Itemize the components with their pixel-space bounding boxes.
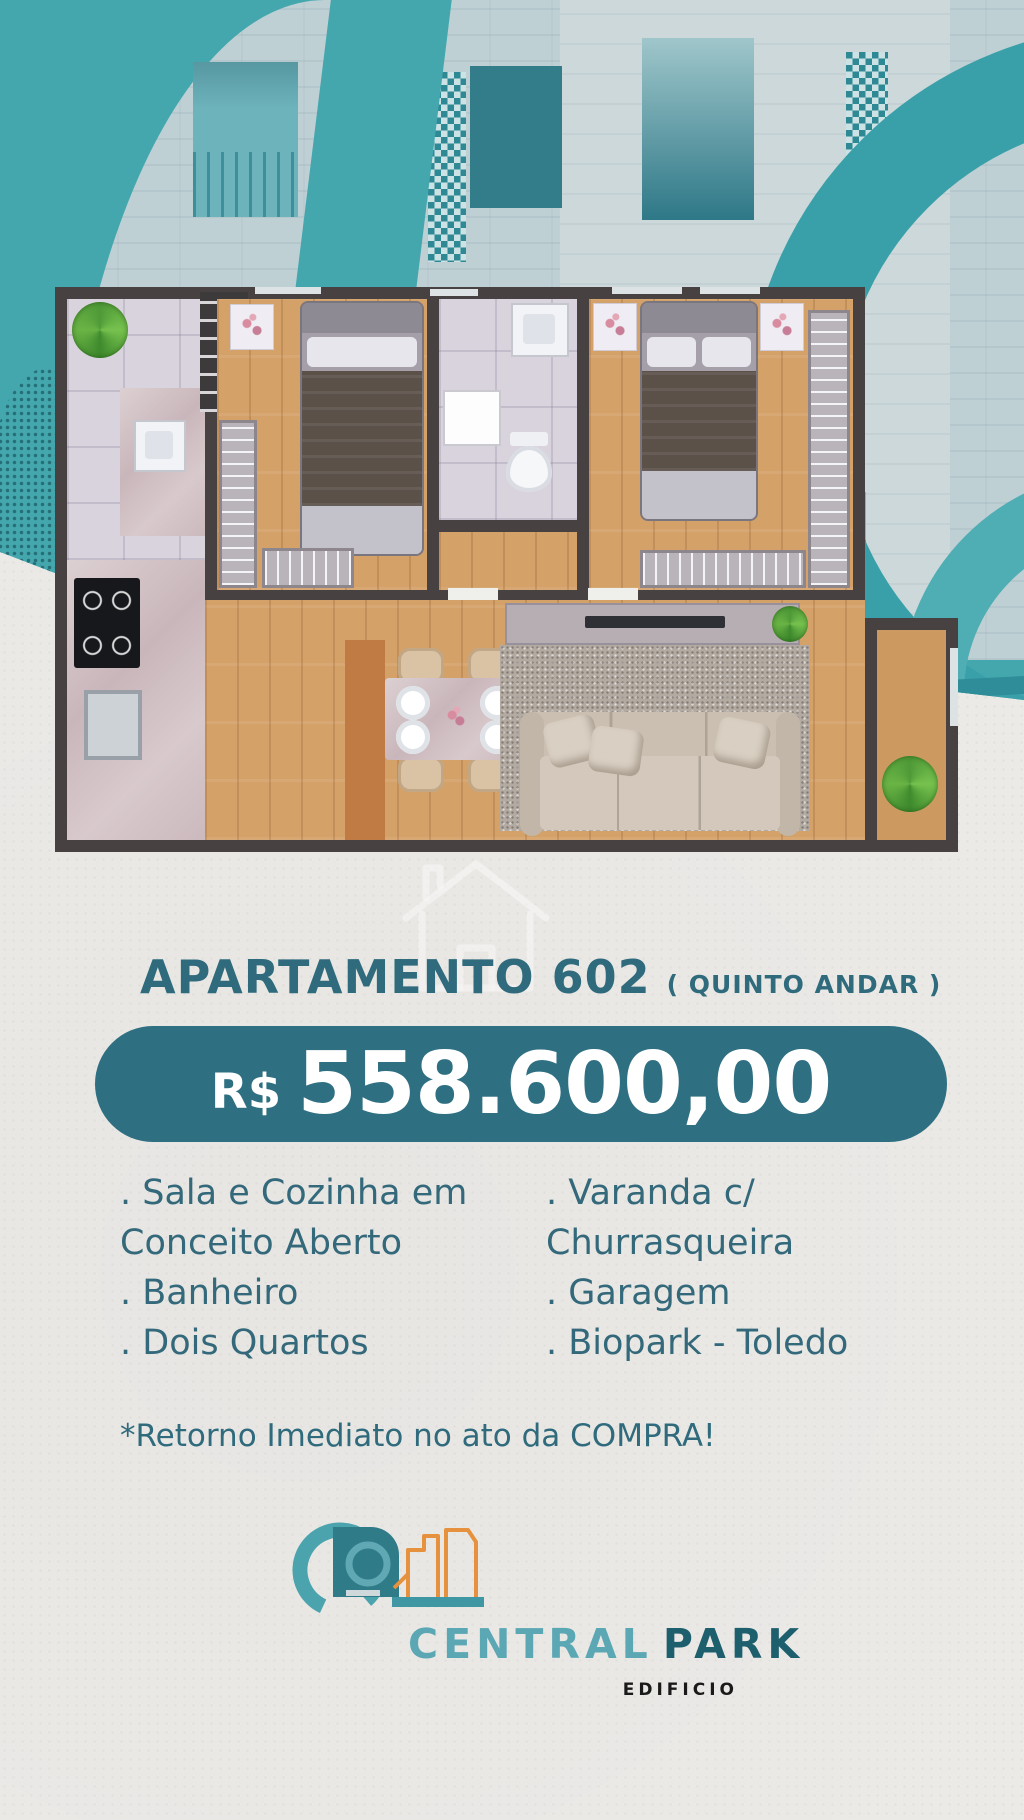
apartment-floor-note: ( QUINTO ANDAR ) xyxy=(667,970,942,999)
tv xyxy=(585,616,725,628)
window-marker xyxy=(255,287,321,294)
brand-subtitle: EDIFICIO xyxy=(560,1680,738,1700)
double-bed xyxy=(640,301,758,521)
plate xyxy=(396,720,430,754)
window-marker xyxy=(700,287,760,294)
feature-item: . Dois Quartos xyxy=(120,1318,528,1368)
door-opening xyxy=(588,588,638,600)
wardrobe-rack xyxy=(219,420,257,588)
page-title: APARTAMENTO 602( QUINTO ANDAR ) xyxy=(140,950,941,1004)
dining-chair xyxy=(398,756,444,792)
brand-name-primary: CENTRAL xyxy=(408,1620,653,1668)
flower-stand xyxy=(230,304,274,350)
toilet xyxy=(506,432,552,492)
window-marker xyxy=(612,287,682,294)
bathroom-sink xyxy=(511,303,569,357)
price-amount: 558.600,00 xyxy=(297,1034,831,1134)
plant-icon xyxy=(772,606,808,642)
feature-item: . Sala e Cozinha em Conceito Aberto xyxy=(120,1168,528,1268)
shower-box xyxy=(443,390,501,446)
feature-column-right: . Varanda c/ Churrasqueira . Garagem . B… xyxy=(546,1168,970,1368)
apartment-title: APARTAMENTO 602 xyxy=(140,950,651,1004)
dining-island xyxy=(345,640,385,840)
purchase-note: *Retorno Imediato no ato da COMPRA! xyxy=(120,1418,716,1454)
wardrobe-rack xyxy=(262,548,354,588)
service-sink xyxy=(134,420,186,472)
feature-item: . Varanda c/ Churrasqueira xyxy=(546,1168,970,1268)
plate xyxy=(396,686,430,720)
table-flowers xyxy=(440,700,472,736)
wardrobe-rack xyxy=(808,310,850,588)
stove-cooktop xyxy=(74,578,140,668)
window-marker xyxy=(950,648,958,726)
window-marker xyxy=(430,289,478,296)
feature-item: . Garagem xyxy=(546,1268,970,1318)
plant-icon xyxy=(72,302,128,358)
price-banner: R$ 558.600,00 xyxy=(95,1026,947,1142)
hallway xyxy=(439,532,577,590)
poster: APARTAMENTO 602( QUINTO ANDAR ) R$ 558.6… xyxy=(0,0,1024,1820)
feature-list: . Sala e Cozinha em Conceito Aberto . Ba… xyxy=(120,1168,970,1368)
feature-item: . Biopark - Toledo xyxy=(546,1318,970,1368)
kitchen-sink xyxy=(84,690,142,760)
feature-item: . Banheiro xyxy=(120,1268,528,1318)
sofa xyxy=(520,712,800,836)
brand-name-secondary: PARK xyxy=(663,1620,804,1668)
brand-name: CENTRALPARK xyxy=(408,1620,804,1668)
price-currency: R$ xyxy=(211,1064,281,1120)
door-opening xyxy=(448,588,498,600)
plant-icon xyxy=(882,756,938,812)
wardrobe-rack xyxy=(640,550,806,588)
single-bed xyxy=(300,301,424,556)
nightstand-flowers xyxy=(760,303,804,351)
feature-column-left: . Sala e Cozinha em Conceito Aberto . Ba… xyxy=(120,1168,528,1368)
nightstand-flowers xyxy=(593,303,637,351)
